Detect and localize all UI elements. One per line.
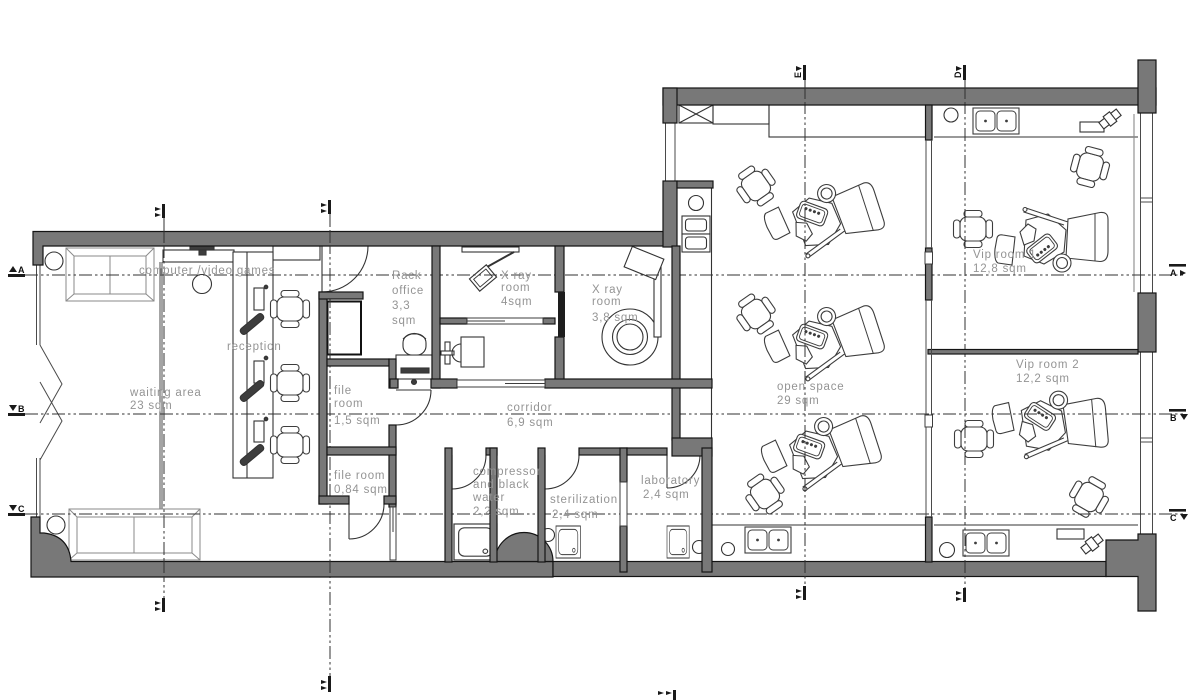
svg-text:corridor: corridor <box>507 402 552 414</box>
svg-text:0,84 sqm: 0,84 sqm <box>334 484 388 496</box>
svg-text:B: B <box>18 404 25 414</box>
svg-text:laboratory: laboratory <box>641 475 700 487</box>
svg-text:and black: and black <box>473 479 529 491</box>
svg-text:Vip room 2: Vip room 2 <box>1016 359 1079 371</box>
svg-text:Vip room 1: Vip room 1 <box>973 249 1036 261</box>
svg-text:C: C <box>18 504 25 514</box>
svg-text:2,4 sqm: 2,4 sqm <box>552 509 599 521</box>
svg-text:office: office <box>392 285 424 297</box>
svg-text:E: E <box>793 72 803 78</box>
svg-text:2,2 sqm: 2,2 sqm <box>473 506 520 518</box>
svg-text:X ray: X ray <box>501 270 532 282</box>
svg-text:waiting area: waiting area <box>129 387 202 399</box>
svg-text:D: D <box>953 71 963 78</box>
svg-text:A: A <box>1170 268 1177 278</box>
svg-text:open space: open space <box>777 381 844 393</box>
svg-text:3,8 sqm: 3,8 sqm <box>592 312 639 324</box>
svg-text:B: B <box>1170 413 1177 423</box>
svg-text:12,8 sqm: 12,8 sqm <box>973 263 1027 275</box>
svg-text:computer /video games: computer /video games <box>139 265 275 277</box>
svg-text:compressor: compressor <box>473 466 541 478</box>
svg-text:room: room <box>334 398 363 410</box>
svg-text:file room: file room <box>334 470 385 482</box>
svg-text:file: file <box>334 385 352 397</box>
svg-text:4sqm: 4sqm <box>501 296 532 308</box>
svg-text:Rack: Rack <box>392 270 421 282</box>
svg-text:X ray: X ray <box>592 284 623 296</box>
svg-text:1,5 sqm: 1,5 sqm <box>334 415 381 427</box>
svg-text:2,4 sqm: 2,4 sqm <box>643 489 690 501</box>
svg-text:29 sqm: 29 sqm <box>777 395 820 407</box>
svg-text:water: water <box>472 492 505 504</box>
svg-text:sqm: sqm <box>392 315 416 327</box>
svg-text:6,9 sqm: 6,9 sqm <box>507 417 554 429</box>
svg-text:reception: reception <box>227 341 282 353</box>
svg-text:12,2 sqm: 12,2 sqm <box>1016 373 1070 385</box>
svg-text:sterilization: sterilization <box>550 494 618 506</box>
svg-text:A: A <box>18 265 25 275</box>
svg-text:room: room <box>592 296 621 308</box>
svg-text:3,3: 3,3 <box>392 300 410 312</box>
svg-text:C: C <box>1170 513 1177 523</box>
svg-text:23 sqm: 23 sqm <box>130 400 173 412</box>
svg-text:room: room <box>501 282 530 294</box>
